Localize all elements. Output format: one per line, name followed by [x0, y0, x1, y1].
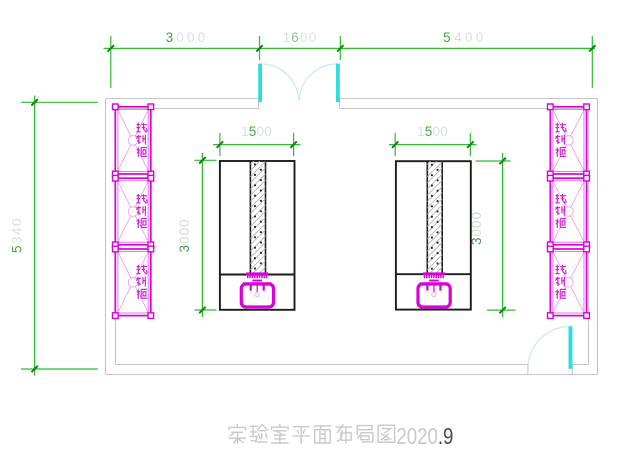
svg-text:2020.9: 2020.9 — [396, 423, 453, 449]
svg-text:5340: 5340 — [10, 217, 25, 253]
svg-text:3000: 3000 — [166, 30, 209, 45]
svg-text:1600: 1600 — [283, 30, 318, 45]
svg-text:3000: 3000 — [177, 218, 192, 252]
svg-text:1500: 1500 — [241, 124, 272, 139]
svg-text:5400: 5400 — [443, 30, 487, 45]
svg-text:1500: 1500 — [417, 124, 448, 139]
